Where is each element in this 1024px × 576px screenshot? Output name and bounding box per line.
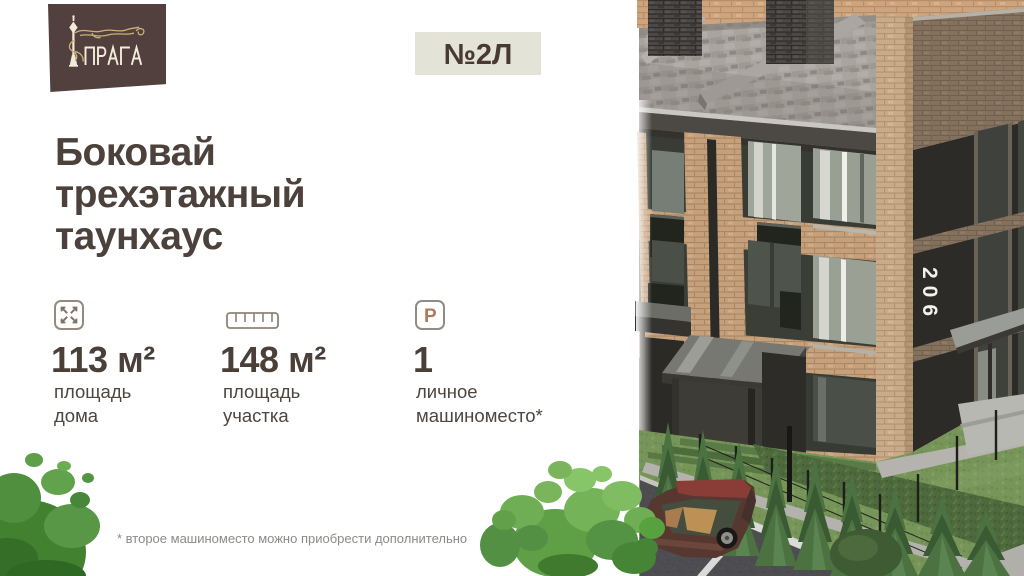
svg-text:206: 206 [918,267,941,323]
svg-text:P: P [424,306,437,327]
